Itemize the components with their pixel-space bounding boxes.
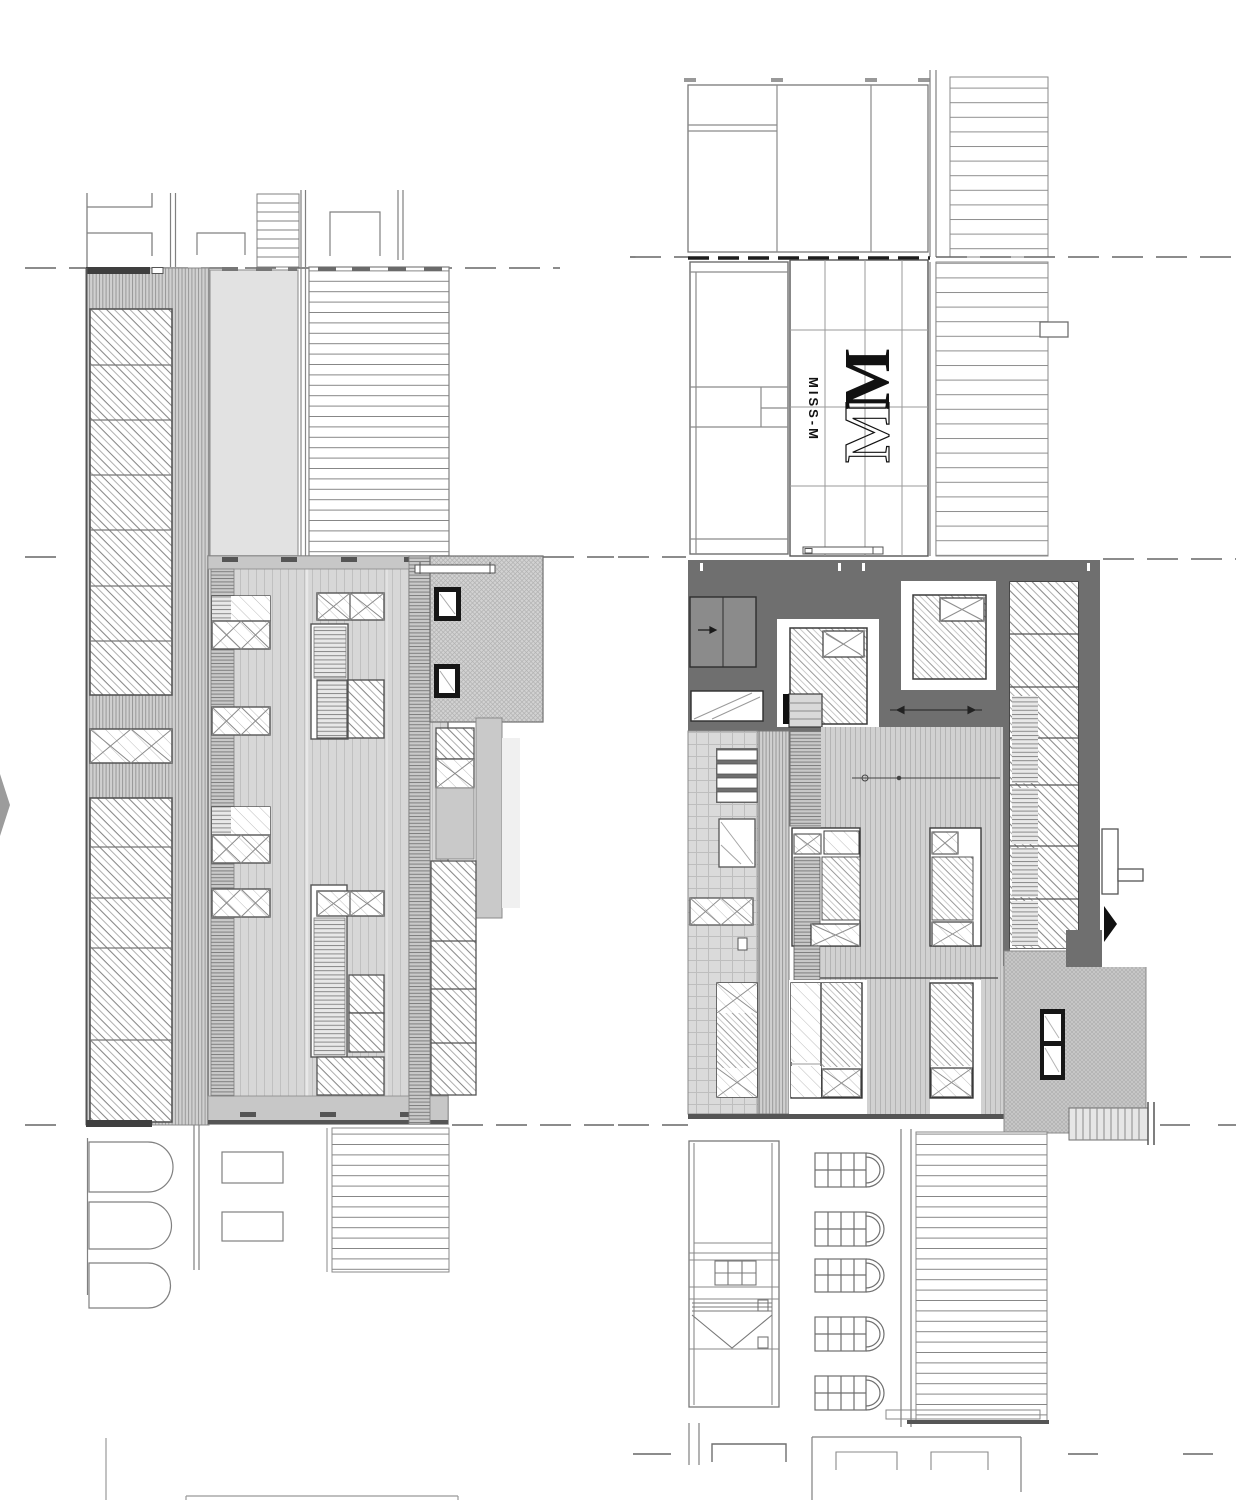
svg-text:M: M [831, 401, 904, 463]
svg-text:M: M [831, 348, 904, 410]
svg-text:MISS-M: MISS-M [806, 377, 821, 442]
